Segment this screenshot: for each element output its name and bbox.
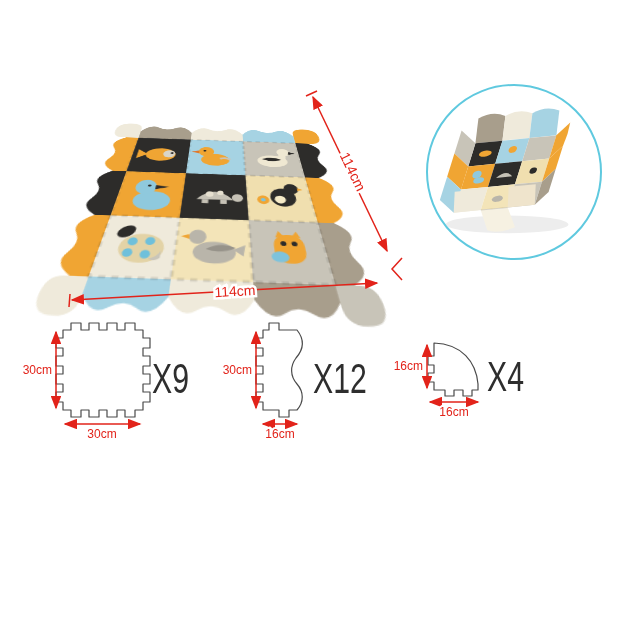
turtle-leg: [202, 199, 209, 203]
playpen-back-wall: [529, 109, 559, 138]
corner-angle-mark: [392, 258, 402, 280]
corner-count-label: X4: [487, 353, 524, 400]
play-mat-top-view: [24, 122, 396, 331]
border-edge-bottom-1: [77, 276, 171, 312]
border-edge-top-1: [139, 126, 193, 140]
edge-tile-outline: [256, 323, 302, 417]
border-corner-tr: [291, 129, 321, 144]
playpen-front-wall: [508, 184, 536, 207]
border-edge-bottom-2: [166, 279, 255, 315]
border-edge-bottom-3: [253, 282, 345, 319]
corner-count: X4: [487, 353, 524, 400]
square-count: X9: [152, 355, 189, 402]
playpen-back-wall: [475, 114, 505, 143]
mat-3d-wrapper: [85, 65, 345, 325]
piece-diagram-edge: 30cm 16cm X12: [223, 323, 367, 441]
square-count-label: X9: [152, 355, 189, 402]
piece-diagram-square: 30cm 30cm X9: [23, 323, 189, 441]
playpen-inset-circle: [426, 84, 602, 260]
border-corner-bl: [29, 275, 89, 317]
product-diagram: 114cm 114cm: [0, 0, 640, 640]
piece-diagrams: 30cm 30cm X9 30cm 16cm X12 16cm 16cm: [0, 320, 640, 470]
playpen-inset-view: [428, 86, 600, 258]
edge-count-label: X12: [313, 355, 367, 402]
playpen-front-wall: [454, 189, 482, 212]
edge-height-label: 30cm: [223, 363, 252, 377]
corner-height-label: 16cm: [394, 359, 423, 373]
edge-count: X12: [313, 355, 367, 402]
playpen-back-wall: [502, 111, 532, 140]
turtle-leg: [220, 200, 227, 204]
corner-tile-outline: [428, 343, 478, 396]
border-corner-tl: [112, 123, 143, 138]
mat-3d-tilt: [24, 122, 396, 331]
corner-width-label: 16cm: [439, 405, 468, 419]
square-width-label: 30cm: [87, 427, 116, 441]
edge-width-label: 16cm: [265, 427, 294, 441]
square-height-label: 30cm: [23, 363, 52, 377]
piece-diagram-corner: 16cm 16cm X4: [394, 343, 524, 419]
square-tile-outline: [56, 323, 150, 417]
